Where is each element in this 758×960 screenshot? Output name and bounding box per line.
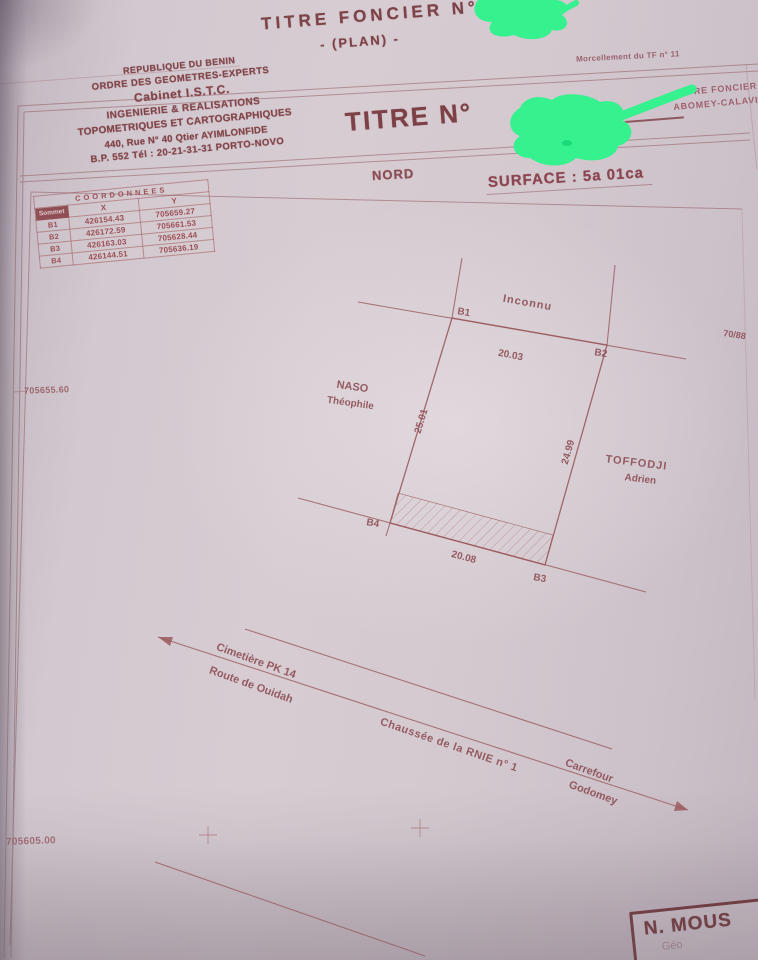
- highlight-blob-title: [510, 89, 692, 166]
- highlighter-marks: [0, 0, 758, 960]
- scanned-plan-photo: B1 B2 B3 B4 20.03 25.01 24.99 20.08 Inco…: [0, 0, 758, 960]
- highlight-blob-top: [474, 0, 576, 39]
